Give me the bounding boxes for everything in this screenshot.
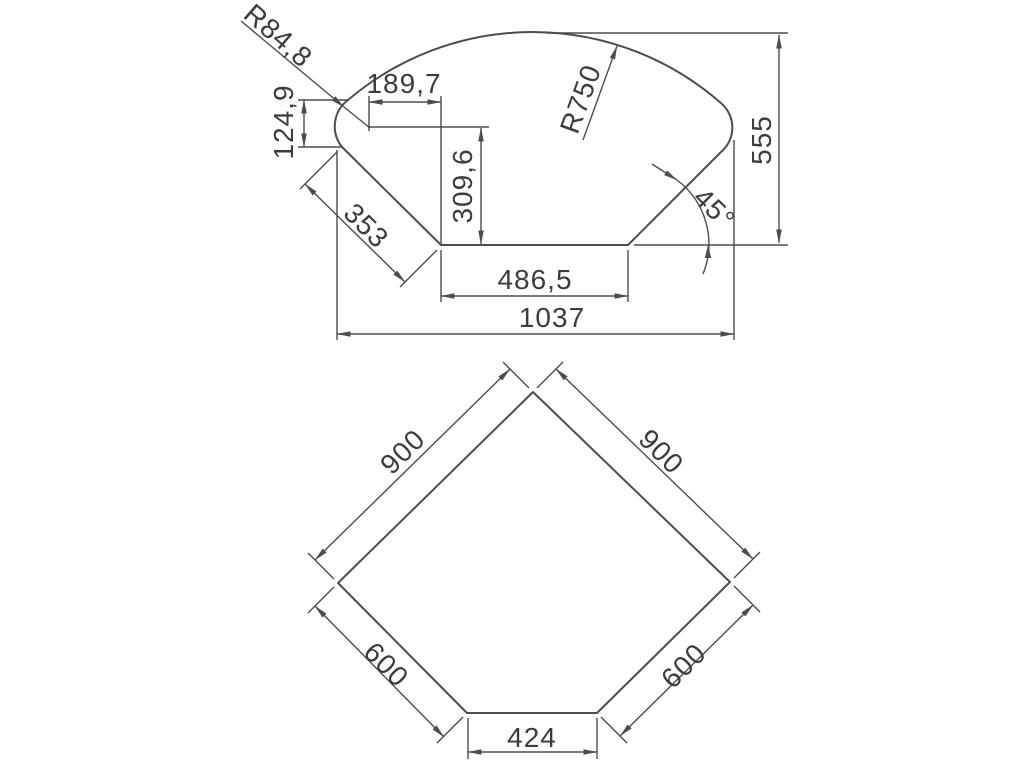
dim-label-front-edge: 424 <box>507 724 557 752</box>
technical-drawing: R84,8 189,7 124,9 R750 555 353 309,6 45°… <box>0 0 1024 768</box>
bottom-view <box>308 362 760 759</box>
drawing-lines <box>0 0 1024 768</box>
dim-label-inner-height: 309,6 <box>449 148 477 223</box>
top-view-outline <box>335 32 733 245</box>
dim-label-corner-height: 124,9 <box>270 84 298 159</box>
dim-label-offset-width: 189,7 <box>366 70 441 98</box>
dim-label-overall-width: 1037 <box>519 304 585 332</box>
bottom-view-dimensions <box>308 362 760 759</box>
dim-label-overall-height: 555 <box>748 115 776 165</box>
dim-label-back-edge: 486,5 <box>497 266 572 294</box>
